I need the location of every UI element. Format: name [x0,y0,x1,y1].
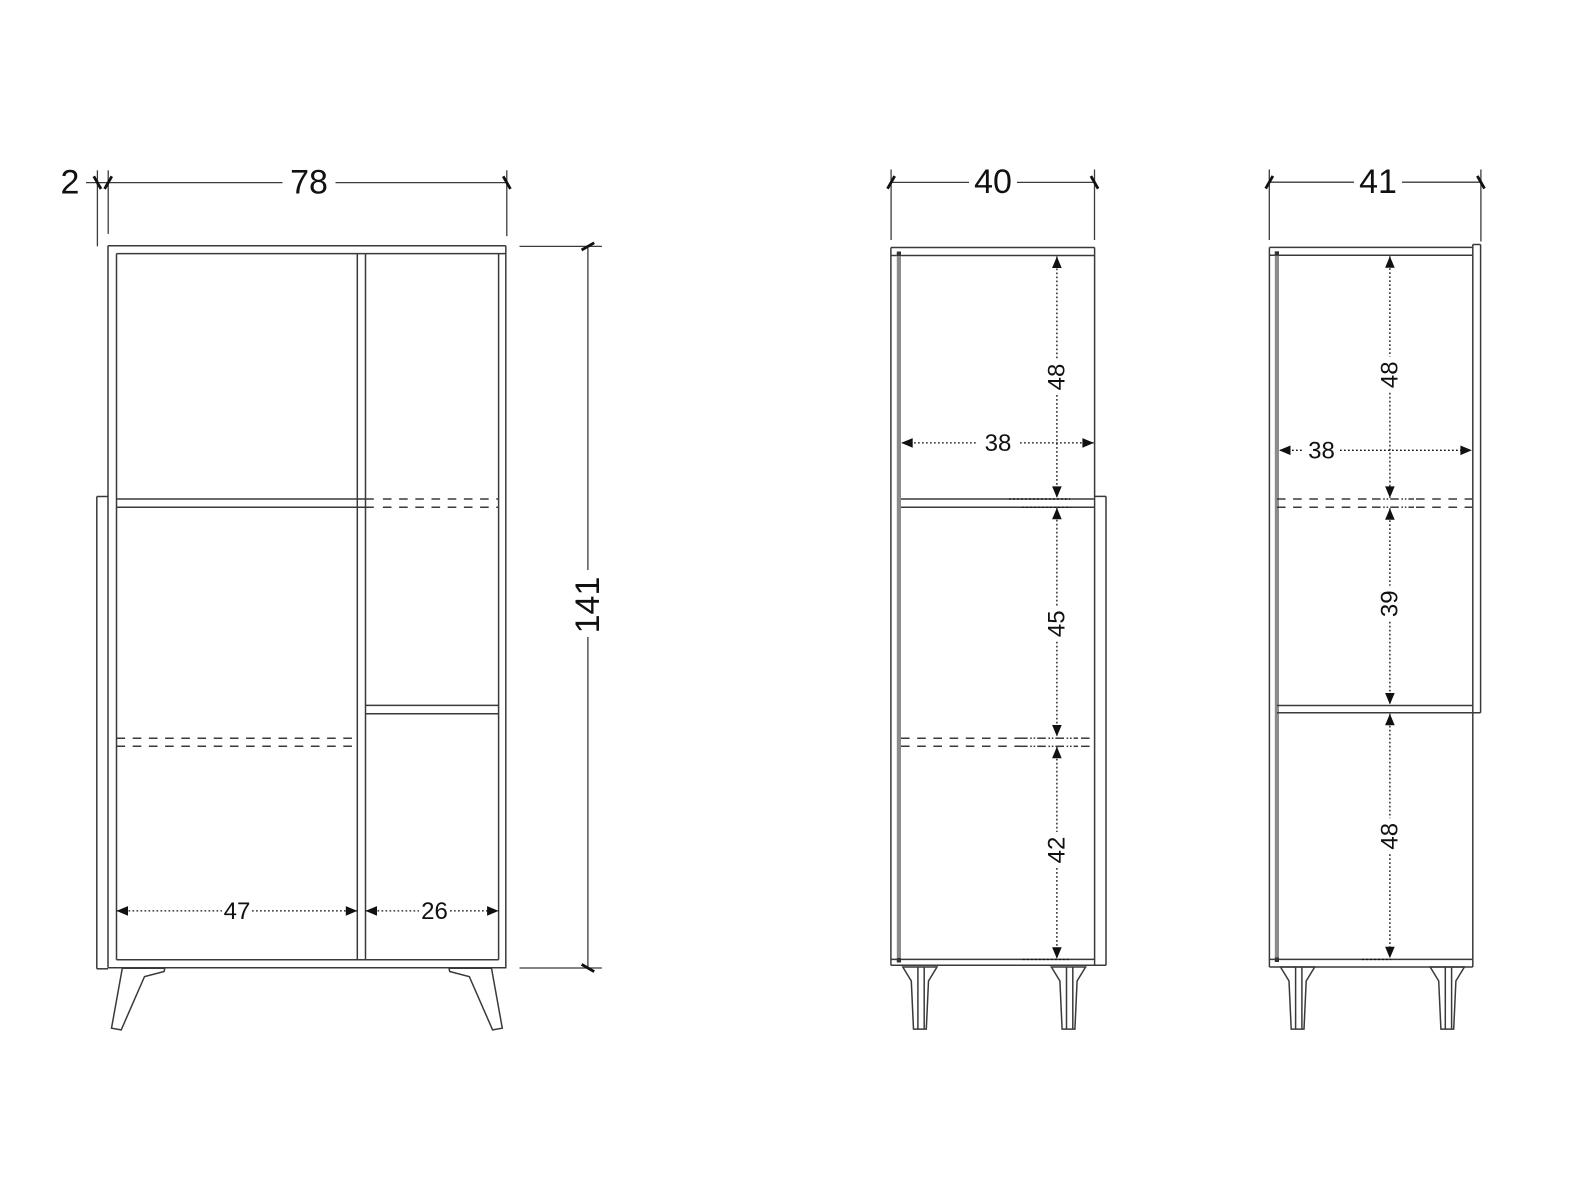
svg-text:42: 42 [1043,837,1070,864]
svg-text:41: 41 [1359,163,1397,201]
svg-text:38: 38 [1308,438,1335,465]
svg-text:48: 48 [1043,364,1070,391]
svg-text:48: 48 [1376,361,1403,388]
svg-text:48: 48 [1376,823,1403,850]
svg-text:2: 2 [61,163,80,201]
svg-text:45: 45 [1043,610,1070,637]
svg-text:39: 39 [1376,590,1403,617]
svg-text:26: 26 [421,898,448,925]
svg-text:141: 141 [569,577,607,634]
svg-text:40: 40 [974,163,1012,201]
svg-text:38: 38 [985,430,1012,457]
svg-text:78: 78 [290,163,328,201]
svg-text:47: 47 [224,898,251,925]
